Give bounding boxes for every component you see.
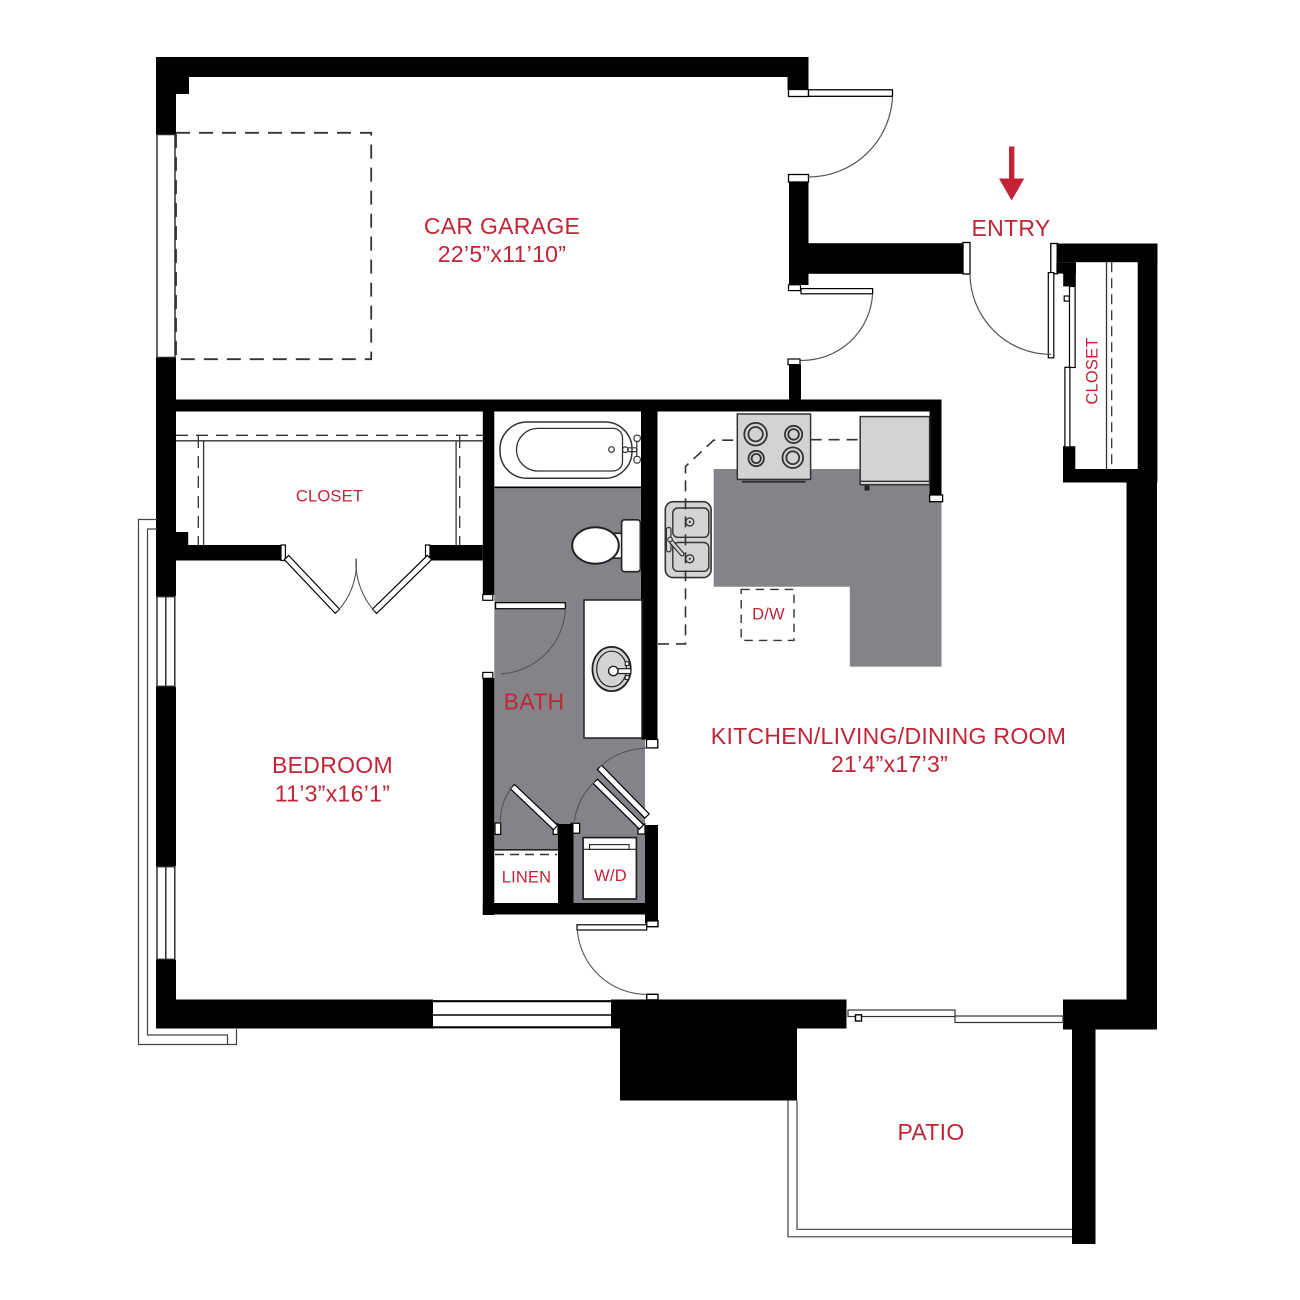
svg-text:22’5”x11’10”: 22’5”x11’10” bbox=[438, 241, 566, 267]
svg-text:KITCHEN/LIVING/DINING ROOM: KITCHEN/LIVING/DINING ROOM bbox=[711, 723, 1066, 749]
svg-text:D/W: D/W bbox=[752, 606, 785, 624]
svg-text:11’3”x16’1”: 11’3”x16’1” bbox=[275, 780, 390, 806]
svg-text:BEDROOM: BEDROOM bbox=[272, 752, 393, 778]
svg-text:CAR GARAGE: CAR GARAGE bbox=[424, 213, 580, 239]
svg-text:CLOSET: CLOSET bbox=[1084, 337, 1102, 404]
svg-text:W/D: W/D bbox=[594, 867, 627, 885]
svg-text:PATIO: PATIO bbox=[897, 1119, 964, 1145]
svg-text:BATH: BATH bbox=[504, 689, 565, 715]
svg-text:ENTRY: ENTRY bbox=[971, 215, 1050, 241]
svg-text:CLOSET: CLOSET bbox=[296, 488, 363, 506]
svg-text:LINEN: LINEN bbox=[502, 869, 552, 887]
svg-text:21’4”x17’3”: 21’4”x17’3” bbox=[831, 751, 948, 777]
